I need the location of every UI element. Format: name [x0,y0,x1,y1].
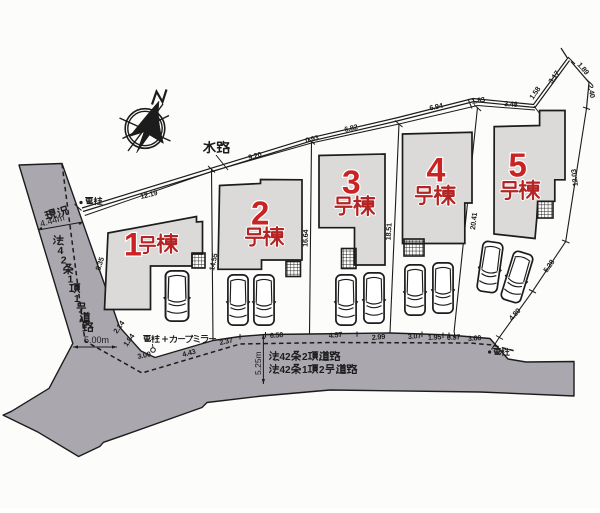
svg-text:3.07: 3.07 [408,331,422,341]
svg-text:4: 4 [427,152,446,190]
svg-text:2: 2 [302,352,308,363]
svg-text:5.00m: 5.00m [84,335,109,345]
svg-text:2: 2 [251,195,269,232]
svg-text:6.50: 6.50 [270,330,284,340]
svg-text:42: 42 [280,352,292,363]
svg-text:0.57: 0.57 [447,332,461,342]
svg-text:1: 1 [74,293,80,305]
svg-text:16.64: 16.64 [301,228,311,247]
svg-text:18.51: 18.51 [384,223,394,241]
svg-text:5: 5 [509,147,527,184]
svg-text:2: 2 [61,254,67,266]
svg-text:2: 2 [319,365,325,376]
svg-text:42: 42 [280,365,292,376]
svg-text:1: 1 [124,227,142,263]
svg-text:2.99: 2.99 [371,332,385,342]
svg-text:1.95: 1.95 [428,332,442,342]
svg-text:1: 1 [68,274,74,286]
svg-text:4.57: 4.57 [328,330,342,340]
svg-text:3.48: 3.48 [504,99,518,109]
svg-text:5.25m: 5.25m [253,351,263,375]
svg-text:1: 1 [302,365,308,376]
svg-text:3.60: 3.60 [468,333,482,343]
